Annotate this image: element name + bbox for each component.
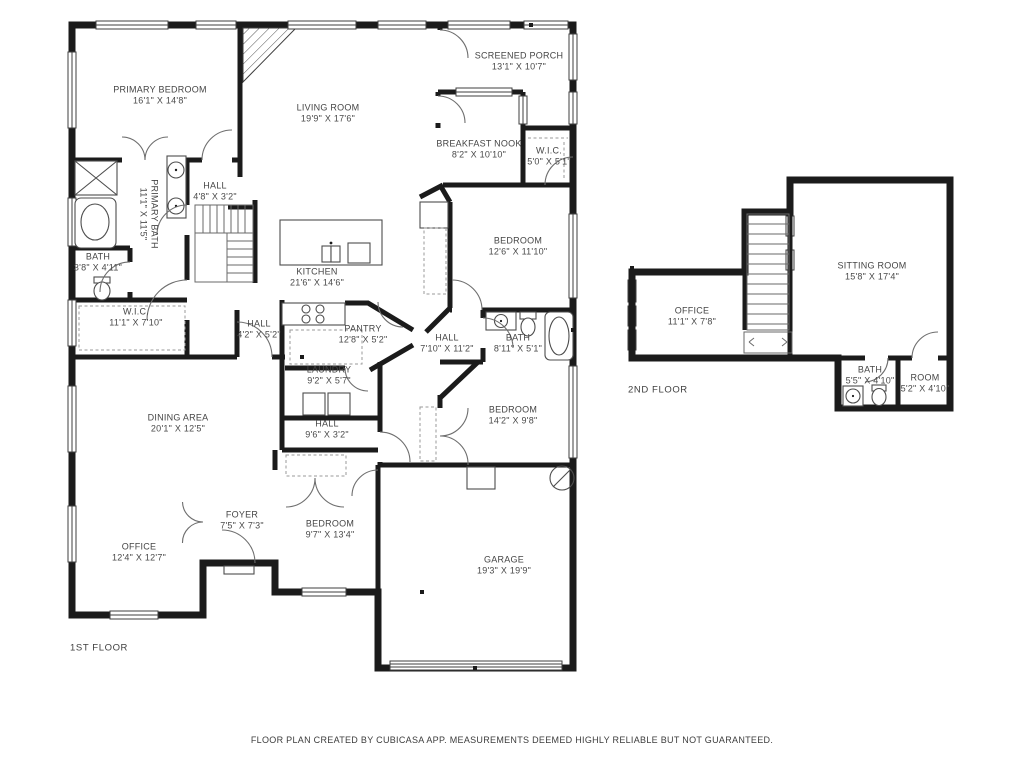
room-name: PRIMARY BATH [149, 179, 160, 249]
room-name: OFFICE [112, 542, 166, 553]
disclaimer-text: FLOOR PLAN CREATED BY CUBICASA APP. MEAS… [0, 735, 1024, 745]
room-name: ROOM [901, 373, 950, 384]
room-label: BATH5'5" X 4'10" [846, 365, 895, 386]
room-dimensions: 14'2" X 9'8" [489, 415, 538, 426]
room-label: HALL4'8" X 3'2" [193, 181, 237, 202]
room-label: OFFICE11'1" X 7'8" [668, 306, 716, 327]
stairs-first-floor [195, 205, 253, 282]
room-dimensions: 8'2" X 10'10" [436, 149, 521, 160]
floorplan-page: PRIMARY BEDROOM16'1" X 14'8"LIVING ROOM1… [0, 0, 1024, 768]
room-label: BEDROOM9'7" X 13'4" [306, 519, 355, 540]
room-name: HALL [305, 419, 349, 430]
room-label: W.I.C.11'1" X 7'10" [109, 307, 162, 328]
room-name: DINING AREA [148, 413, 209, 424]
room-name: SITTING ROOM [838, 261, 907, 272]
room-label: GARAGE19'3" X 19'9" [477, 555, 531, 576]
room-name: BATH [494, 333, 542, 344]
room-dimensions: 9'7" X 13'4" [306, 529, 355, 540]
room-name: HALL [193, 181, 237, 192]
room-label: HALL7'10" X 11'2" [420, 333, 473, 354]
room-dimensions: 5'0" X 5'1" [527, 156, 571, 167]
room-name: BATH [846, 365, 895, 376]
room-name: PRIMARY BEDROOM [113, 85, 206, 96]
room-name: LIVING ROOM [297, 103, 360, 114]
room-dimensions: 15'8" X 17'4" [838, 271, 907, 282]
room-label: BREAKFAST NOOK8'2" X 10'10" [436, 139, 521, 160]
room-dimensions: 16'1" X 14'8" [113, 95, 206, 106]
hatch-triangle [243, 28, 296, 82]
room-label: PRIMARY BATH11'1" X 11'5" [139, 179, 160, 249]
room-name: BEDROOM [306, 519, 355, 530]
room-name: BEDROOM [489, 236, 548, 247]
room-dimensions: 3'8" X 4'11" [74, 262, 122, 273]
room-label: DINING AREA20'1" X 12'5" [148, 413, 209, 434]
room-name: GARAGE [477, 555, 531, 566]
room-name: W.I.C. [109, 307, 162, 318]
second-floor-caption: 2ND FLOOR [628, 385, 688, 396]
first-floor-caption: 1ST FLOOR [70, 643, 128, 654]
room-name: HALL [420, 333, 473, 344]
room-name: OFFICE [668, 306, 716, 317]
room-dimensions: 7'10" X 11'2" [420, 343, 473, 354]
room-label: SITTING ROOM15'8" X 17'4" [838, 261, 907, 282]
room-name: BREAKFAST NOOK [436, 139, 521, 150]
room-label: PRIMARY BEDROOM16'1" X 14'8" [113, 85, 206, 106]
room-label: ROOM5'2" X 4'10" [901, 373, 950, 394]
room-dimensions: 11'1" X 7'8" [668, 316, 716, 327]
room-label: PANTRY12'8" X 5'2" [339, 324, 388, 345]
room-label: HALL9'6" X 3'2" [305, 419, 349, 440]
room-name: BATH [74, 252, 122, 263]
room-dimensions: 21'6" X 14'6" [290, 277, 344, 288]
room-dimensions: 11'1" X 11'5" [139, 179, 150, 249]
room-name: BEDROOM [489, 405, 538, 416]
room-name: FOYER [220, 510, 264, 521]
room-label: W.I.C.5'0" X 5'1" [527, 146, 571, 167]
room-dimensions: 19'3" X 19'9" [477, 565, 531, 576]
room-name: W.I.C. [527, 146, 571, 157]
room-dimensions: 19'9" X 17'6" [297, 113, 360, 124]
room-name: KITCHEN [290, 267, 344, 278]
room-label: BATH8'11" X 5'1" [494, 333, 542, 354]
room-label: KITCHEN21'6" X 14'6" [290, 267, 344, 288]
room-label: LAUNDRY9'2" X 5'7" [307, 365, 352, 386]
room-dimensions: 7'5" X 7'3" [220, 520, 264, 531]
room-dimensions: 11'1" X 7'10" [109, 317, 162, 328]
room-dimensions: 20'1" X 12'5" [148, 423, 209, 434]
room-name: SCREENED PORCH [475, 51, 564, 62]
room-name: PANTRY [339, 324, 388, 335]
stairs-second-floor [744, 214, 792, 353]
room-dimensions: 5'5" X 4'10" [846, 375, 895, 386]
room-dimensions: 8'11" X 5'1" [494, 343, 542, 354]
room-dimensions: 4'2" X 5'2" [237, 329, 281, 340]
room-label: SCREENED PORCH13'1" X 10'7" [475, 51, 564, 72]
room-label: BATH3'8" X 4'11" [74, 252, 122, 273]
room-label: BEDROOM14'2" X 9'8" [489, 405, 538, 426]
room-label: FOYER7'5" X 7'3" [220, 510, 264, 531]
room-dimensions: 9'2" X 5'7" [307, 375, 352, 386]
room-name: HALL [237, 319, 281, 330]
room-name: LAUNDRY [307, 365, 352, 376]
room-dimensions: 12'8" X 5'2" [339, 334, 388, 345]
room-dimensions: 13'1" X 10'7" [475, 61, 564, 72]
room-dimensions: 4'8" X 3'2" [193, 191, 237, 202]
room-dimensions: 5'2" X 4'10" [901, 383, 950, 394]
room-dimensions: 9'6" X 3'2" [305, 429, 349, 440]
room-label: OFFICE12'4" X 12'7" [112, 542, 166, 563]
fixtures-second-floor [843, 385, 886, 406]
room-label: HALL4'2" X 5'2" [237, 319, 281, 340]
room-label: BEDROOM12'6" X 11'10" [489, 236, 548, 257]
room-dimensions: 12'6" X 11'10" [489, 246, 548, 257]
room-dimensions: 12'4" X 12'7" [112, 552, 166, 563]
room-label: LIVING ROOM19'9" X 17'6" [297, 103, 360, 124]
